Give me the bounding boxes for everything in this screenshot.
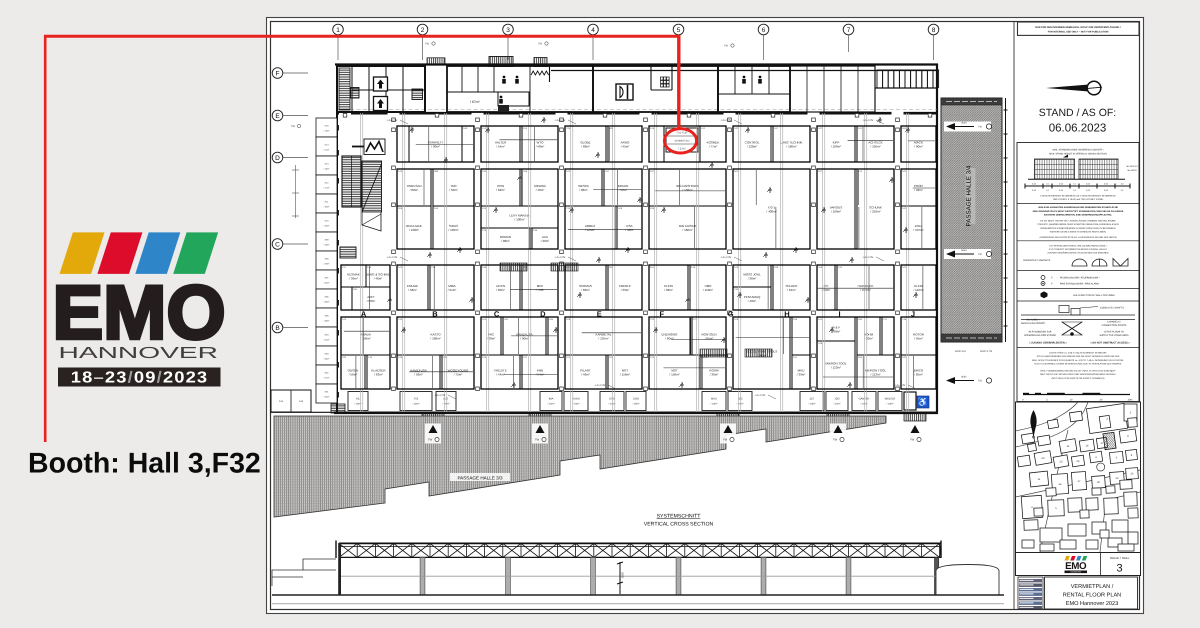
svg-text:5,00: 5,00 — [621, 572, 625, 578]
svg-text:HANNOVER: HANNOVER — [59, 345, 219, 362]
svg-text:/ 22m²: / 22m² — [834, 403, 841, 406]
svg-text:/ 105m²: / 105m² — [870, 145, 880, 149]
svg-text:/ 80m²: / 80m² — [410, 188, 419, 192]
svg-text:STELLA ABZUGEBENDE NACHWEISE W: STELLA ABZUGEBENDE NACHWEISE WIE SIE SIC… — [1037, 355, 1120, 358]
svg-text:I: I — [839, 310, 841, 319]
svg-text:TW: TW — [910, 438, 915, 442]
svg-text:/ 90m²: / 90m² — [520, 337, 529, 341]
svg-text:B: B — [432, 310, 438, 319]
svg-text:A: A — [361, 310, 367, 319]
svg-text:Booth: Hall 3,F32: Booth: Hall 3,F32 — [28, 448, 261, 480]
svg-text:MAX. HOOK TOLERANCE FOR EXHIBI: MAX. HOOK TOLERANCE FOR EXHIBITS ca. 4,2… — [1032, 359, 1124, 362]
svg-text:FIRE EXTINGUISHER / FIRE ALARM: FIRE EXTINGUISHER / FIRE ALARM — [1060, 283, 1099, 286]
svg-text:/ 36m²: / 36m² — [710, 373, 719, 377]
svg-text:HALLE / HALL: HALLE / HALL — [1110, 556, 1130, 560]
svg-text:WEITERE DETAILS SIEHE TECHNISC: WEITERE DETAILS SIEHE TECHNISCHE RICHTLI… — [1050, 230, 1107, 233]
svg-text:/ 30m²: / 30m² — [324, 206, 330, 209]
svg-text:/ 62m²: / 62m² — [496, 188, 505, 192]
svg-text:IMA: IMA — [549, 398, 554, 401]
svg-text:L.Ku 5,7M: L.Ku 5,7M — [435, 394, 446, 397]
svg-text:/ 28m²: / 28m² — [487, 337, 496, 341]
svg-text:/ 36m²: / 36m² — [324, 244, 330, 247]
svg-text:4: 4 — [591, 27, 595, 34]
svg-text:WO KABEL /: WO KABEL / — [1026, 319, 1040, 322]
svg-text:HALLENSTÜTZEN / WALL COLUMNS: HALLENSTÜTZEN / WALL COLUMNS — [1073, 294, 1115, 297]
svg-text:/ 113m²: / 113m² — [831, 366, 841, 370]
svg-text:/ 24m²: / 24m² — [573, 403, 580, 406]
svg-text:E: E — [275, 113, 280, 120]
svg-text:VARIANTEN / VARIANTS: VARIANTEN / VARIANTS — [1023, 259, 1051, 262]
svg-text:/ 156m²: / 156m² — [620, 373, 630, 377]
svg-text:/ 150m²: / 150m² — [360, 337, 370, 341]
svg-text:EMO Hannover 2023: EMO Hannover 2023 — [1066, 601, 1119, 607]
svg-text:L.Ku 5,7M: L.Ku 5,7M — [895, 384, 906, 387]
svg-text:ELT CONCEPT DISTRIBUTION BOXES: ELT CONCEPT DISTRIBUTION BOXES ON WALL W… — [1049, 248, 1107, 251]
svg-text:ZUGANG GEWÄHRLEISTEN / ACCESS: ZUGANG GEWÄHRLEISTEN / ACCESS MUST BE EN… — [1047, 252, 1109, 255]
svg-text:/ 45m²: / 45m² — [324, 301, 330, 304]
svg-text:/ 110m²: / 110m² — [703, 288, 713, 292]
svg-text:/ 63m²: / 63m² — [374, 373, 383, 377]
svg-text:MHU: MHU — [711, 398, 717, 401]
svg-text:VERTICAL CROSS SECTION: VERTICAL CROSS SECTION — [644, 522, 714, 528]
svg-text:/ 36m²: / 36m² — [541, 239, 550, 243]
svg-text:D: D — [540, 310, 546, 319]
svg-text:/ 135m²: / 135m² — [598, 337, 608, 341]
svg-text:3: 3 — [506, 27, 510, 34]
svg-text:/ 60m²: / 60m² — [665, 337, 674, 341]
svg-text:FEUERLÖSCHER / FEUERMELDER /: FEUERLÖSCHER / FEUERMELDER / — [1060, 277, 1100, 280]
svg-text:ES IST NICHT GESTATTET, LAGERF: ES IST NICHT GESTATTET, LAGERFLÄCHEN, KA… — [1040, 220, 1116, 223]
svg-text:/ 92m²: / 92m² — [914, 188, 923, 192]
svg-text:/ 160m²: / 160m² — [786, 145, 796, 149]
svg-text:/ 130m²: / 130m² — [409, 228, 419, 232]
svg-text:L.Ku 5,7M: L.Ku 5,7M — [755, 394, 766, 397]
svg-text:/ 50m²: / 50m² — [367, 299, 376, 303]
svg-text:6: 6 — [762, 27, 766, 34]
svg-text:CONNECTION POINTS: CONNECTION POINTS — [1102, 324, 1127, 327]
svg-text:MAX. FUSSBODENBELASTUNG 5,0 t/: MAX. FUSSBODENBELASTUNG 5,0 t/m² / MAX. … — [1041, 369, 1116, 372]
svg-text:L.Ku 5,7M: L.Ku 5,7M — [555, 119, 566, 122]
svg-text:/ 68m²: / 68m² — [581, 145, 590, 149]
svg-text:A16: A16 — [299, 400, 304, 403]
svg-text:ZET: ZET — [810, 398, 815, 401]
svg-text:L.Ku 5,7M: L.Ku 5,7M — [863, 256, 874, 259]
svg-text:/ 98m²: / 98m² — [664, 288, 673, 292]
svg-text:/ 27m²: / 27m² — [678, 148, 685, 151]
svg-text:STM: STM — [609, 398, 614, 401]
svg-text:« DO NOT OBSTRUCT ACCESS »: « DO NOT OBSTRUCT ACCESS » — [1090, 342, 1130, 345]
svg-text:/ 67m²: / 67m² — [470, 100, 480, 104]
svg-text:/ 169m²: / 169m² — [831, 210, 841, 214]
svg-text:SUPPLY THE STAND AREA: SUPPLY THE STAND AREA — [1099, 334, 1129, 337]
svg-text:KE: KE — [356, 398, 360, 401]
svg-text:/ 95m²: / 95m² — [914, 337, 923, 341]
svg-text:/ 216m²: / 216m² — [870, 210, 880, 214]
svg-text:/ 65m²: / 65m² — [705, 337, 714, 341]
svg-text:/ 24m²: / 24m² — [737, 403, 744, 406]
svg-text:/ 20m²: / 20m² — [633, 403, 640, 406]
svg-text:/ 60m²: / 60m² — [324, 396, 330, 399]
svg-text:LKW 3,6t: LKW 3,6t — [955, 350, 966, 353]
svg-text:/ 113m²: / 113m² — [871, 373, 881, 377]
svg-text:/ 156m²: / 156m² — [669, 373, 679, 377]
svg-text:/ 50m²: / 50m² — [449, 188, 458, 192]
svg-text:L.Ku 5,7M: L.Ku 5,7M — [721, 256, 732, 259]
svg-text:/ 32m²: / 32m² — [413, 403, 420, 406]
svg-text:OBLT. NICHT AUF SICHER HÖHE UN: OBLT. NICHT AUF SICHER HÖHE UND VERSORGU… — [1040, 373, 1117, 376]
svg-text:LKW 3,75t: LKW 3,75t — [980, 350, 992, 353]
svg-text:/ 46m²: / 46m² — [581, 373, 590, 377]
svg-text:2: 2 — [421, 27, 425, 34]
svg-text:/ 58m²: / 58m² — [408, 288, 417, 292]
svg-text:WALTER: WALTER — [885, 398, 896, 401]
svg-text:/ 40m²: / 40m² — [536, 188, 545, 192]
svg-text:/ 86m²: / 86m² — [579, 188, 588, 192]
svg-text:VERSORGUNG DER STÄNDE: VERSORGUNG DER STÄNDE — [1024, 334, 1057, 337]
svg-text:/ 90m²: / 90m² — [431, 145, 440, 149]
svg-text:L.Ku 5,7M: L.Ku 5,7M — [387, 256, 398, 259]
svg-text:NUR FÜR DEN INTERNEN GEBRAUCH,: NUR FÜR DEN INTERNEN GEBRAUCH, NICHT ZUR… — [1035, 25, 1121, 29]
svg-text:/ 85m²: / 85m² — [914, 373, 923, 377]
svg-text:D: D — [275, 155, 280, 162]
svg-text:PASSAGE HALLE 3/3: PASSAGE HALLE 3/3 — [457, 476, 503, 481]
svg-text:TW: TW — [538, 43, 543, 46]
svg-text:L.Ku 5,7M: L.Ku 5,7M — [863, 119, 874, 122]
svg-text:IM FUSSBODEN ZUR: IM FUSSBODEN ZUR — [1029, 331, 1052, 334]
svg-text:« ZUGANG GEWÄHRLEISTEN »: « ZUGANG GEWÄHRLEISTEN » — [1029, 341, 1067, 345]
svg-text:18–23/09/2023: 18–23/09/2023 — [71, 369, 208, 386]
svg-text:/ 51m²: / 51m² — [324, 339, 330, 342]
svg-text:/ 24m²: / 24m² — [711, 403, 718, 406]
svg-text:/ 22m²: / 22m² — [548, 403, 555, 406]
svg-text:/ 27m²: / 27m² — [324, 187, 330, 190]
svg-text:/ 58m²: / 58m² — [414, 373, 423, 377]
svg-text:/ 120m²: / 120m² — [747, 145, 757, 149]
svg-text:VERMIETPLAN /: VERMIETPLAN / — [1071, 583, 1114, 590]
svg-text:G: G — [728, 310, 734, 319]
svg-text:PODESTE, ABHÄNGUNGEN ODER SONS: PODESTE, ABHÄNGUNGEN ODER SONSTIGE EINBA… — [1037, 223, 1118, 226]
svg-text:B3/4: B3/4 — [962, 122, 968, 125]
svg-text:/ 52m²: / 52m² — [619, 188, 628, 192]
svg-text:EMO: EMO — [52, 271, 225, 356]
svg-text:/ 66m²: / 66m² — [581, 288, 590, 292]
svg-text:BAUHÖHE ÜBERSCHREITEN, SIND GE: BAUHÖHE ÜBERSCHREITEN, SIND GENEHMIGUNGS… — [1044, 213, 1112, 216]
svg-text:/ 109m²: / 109m² — [831, 145, 841, 149]
svg-text:/ 54m²: / 54m² — [324, 358, 330, 361]
svg-text:GENEHMIGTEN STANDGRENZEN ZU ER: GENEHMIGTEN STANDGRENZEN ZU ERRICHTEN OD… — [1040, 227, 1116, 230]
svg-text:L.Ku 5,7M: L.Ku 5,7M — [555, 256, 566, 259]
svg-text:CHANNELS /: CHANNELS / — [1107, 321, 1121, 324]
svg-text:EXM: EXM — [633, 398, 639, 401]
svg-text:/ 199m²: / 199m² — [448, 228, 458, 232]
svg-text:/ 44m²: / 44m² — [496, 373, 505, 377]
svg-text:SCHMIDT&co: SCHMIDT&co — [674, 140, 690, 143]
svg-text:F02: F02 — [414, 398, 419, 401]
svg-text:/ 18m²: / 18m² — [324, 130, 330, 133]
svg-text:STAND / AS OF:: STAND / AS OF: — [1039, 107, 1116, 119]
svg-text:RUKO: RUKO — [572, 398, 580, 401]
svg-text:/ 75m²: / 75m² — [454, 373, 463, 377]
svg-text:/ 20m²: / 20m² — [864, 337, 873, 341]
svg-text:J: J — [911, 310, 915, 319]
svg-text:C: C — [494, 310, 500, 319]
svg-text:H: H — [784, 310, 789, 319]
svg-text:ELT-VERTEILUNG IN MAX. WALLDOW: ELT-VERTEILUNG IN MAX. WALLDOWN ANSCHLÜS… — [1049, 244, 1106, 247]
svg-text:5m HOCH /: 5m HOCH / — [1126, 165, 1138, 168]
svg-text:TW: TW — [724, 45, 729, 48]
svg-text:F: F — [276, 70, 280, 77]
svg-text:/ 158m²: / 158m² — [682, 188, 692, 192]
svg-text:/ 30m²: / 30m² — [822, 288, 831, 292]
svg-text:1-GESCHOSSIGKEIT IM UMKREIS un: 1-GESCHOSSIGKEIT IM UMKREIS und 1-GESCHO… — [1040, 195, 1117, 198]
svg-text:MAX. STAND HEIGHT IN VERTICAL: MAX. STAND HEIGHT IN VERTICAL CROSS SECT… — [1049, 152, 1107, 155]
svg-text:/ 48m²: / 48m² — [536, 145, 545, 149]
svg-text:LICHTE HÖHE ca. 4,50 m / Bq AS: LICHTE HÖHE ca. 4,50 m / Bq AS AUSREICH … — [1049, 351, 1107, 354]
svg-text:8: 8 — [932, 27, 936, 34]
svg-text:/ 39m²: / 39m² — [621, 288, 630, 292]
svg-text:/ 24m²: / 24m² — [324, 168, 330, 171]
svg-text:/ 160m²: / 160m² — [682, 228, 692, 232]
svg-text:JSO: JSO — [834, 398, 839, 401]
svg-text:/ 125m²: / 125m² — [585, 228, 595, 232]
svg-text:ONE-STOREY 3.75 M2 und TWO-STO: ONE-STOREY 3.75 M2 und TWO-STOREY STAND — [1053, 198, 1104, 201]
svg-text:30m: 30m — [1128, 398, 1133, 401]
svg-text:ALTO A CLEARANCE LOWER IN GERÜ: ALTO A CLEARANCE LOWER IN GERÜSTLAGE DUE… — [1034, 363, 1122, 366]
svg-text:RENTAL FLOOR PLAN: RENTAL FLOOR PLAN — [1063, 593, 1121, 599]
svg-text:F32 FLIR: F32 FLIR — [677, 132, 688, 135]
svg-text:/ 24m²: / 24m² — [887, 403, 894, 406]
svg-text:/ 75m²: / 75m² — [536, 288, 545, 292]
svg-text:/ 38m²: / 38m² — [625, 228, 634, 232]
svg-text:/ 90m²: / 90m² — [914, 145, 923, 149]
svg-text:TW: TW — [833, 438, 838, 442]
svg-text:B3/4: B3/4 — [962, 249, 968, 252]
svg-text:B: B — [275, 325, 279, 332]
svg-text:PASSAGE HALLE 3/4: PASSAGE HALLE 3/4 — [966, 165, 973, 226]
svg-text:/ 33m²: / 33m² — [324, 225, 330, 228]
svg-text:AUSWEISUNG DER SITZPLÄTZE ALL: AUSWEISUNG DER SITZPLÄTZE ALL LAUFENDEN … — [1040, 236, 1117, 239]
svg-text:/ 39m²: / 39m² — [797, 373, 806, 377]
svg-text:TW: TW — [535, 438, 540, 442]
svg-text:SIND GRUNDSÄTZLICH NICHT GESTA: SIND GRUNDSÄTZLICH NICHT GESTATTET. STAN… — [1033, 210, 1124, 213]
svg-text:MAX. STANDBAUHÖHE IM BEREICH S: MAX. STANDBAUHÖHE IM BEREICH SCHNITT / — [1052, 149, 1103, 152]
svg-text:7: 7 — [847, 27, 851, 34]
svg-text:L.Ku 5,7M: L.Ku 5,7M — [721, 119, 732, 122]
svg-text:3: 3 — [1116, 563, 1122, 575]
svg-text:TW: TW — [428, 438, 433, 442]
svg-text:/ 42m²: / 42m² — [324, 282, 330, 285]
svg-text:FOR INTERNAL USE ONLY – NOT FO: FOR INTERNAL USE ONLY – NOT FOR PUBLICAT… — [1048, 30, 1109, 33]
svg-text:/ 39m²: / 39m² — [324, 263, 330, 266]
svg-text:GANTER: GANTER — [859, 398, 870, 401]
svg-text:TW: TW — [425, 43, 430, 46]
svg-text:/ 45m²: / 45m² — [621, 145, 630, 149]
svg-text:06.06.2023: 06.06.2023 — [1049, 123, 1107, 135]
svg-text:♿: ♿ — [917, 396, 928, 407]
svg-text:/ 46m²: / 46m² — [374, 277, 383, 281]
svg-text:/ 54m²: / 54m² — [496, 145, 505, 149]
svg-text:1: 1 — [336, 27, 340, 34]
svg-text:ANSCHLUSS PRIVATE: ANSCHLUSS PRIVATE — [1021, 322, 1046, 325]
svg-text:L.Ku 5,7M: L.Ku 5,7M — [387, 119, 398, 122]
svg-text:/ 60m²: / 60m² — [496, 288, 505, 292]
svg-text:B3/4: B3/4 — [962, 376, 968, 379]
svg-text:/ 39m²: / 39m² — [349, 277, 358, 281]
svg-text:/ 88m²: / 88m² — [501, 239, 510, 243]
svg-text:/ 168m²: / 168m² — [430, 337, 440, 341]
svg-text:/ 36m²: / 36m² — [748, 277, 757, 281]
svg-text:/ 112m²: / 112m² — [914, 288, 924, 292]
svg-text:TW: TW — [291, 125, 296, 128]
svg-text:CONDUITS / SHAFTS: CONDUITS / SHAFTS — [1100, 307, 1124, 310]
svg-text:/ 21m²: / 21m² — [324, 149, 330, 152]
svg-text:/ 40m²: / 40m² — [748, 299, 757, 303]
svg-text:A15: A15 — [279, 400, 284, 403]
svg-text:HANNOVER: HANNOVER — [1070, 571, 1081, 574]
svg-text:(NOT VALID FOR SHAFTS OR SUPPL: (NOT VALID FOR SHAFTS OR SUPPLY CHANNELS… — [1052, 377, 1105, 380]
svg-text:SYSTEMSCHNITT: SYSTEMSCHNITT — [657, 514, 702, 520]
svg-text:/ 64m²: / 64m² — [787, 288, 796, 292]
svg-text:/ 91m²: / 91m² — [448, 288, 457, 292]
svg-text:/ 77m²: / 77m² — [709, 145, 718, 149]
svg-text:5m HIGH: 5m HIGH — [1127, 169, 1137, 172]
svg-text:IN THE FLOOR TO: IN THE FLOOR TO — [1104, 331, 1124, 334]
svg-text:/ 400m²: / 400m² — [766, 210, 776, 214]
svg-text:/ 57m²: / 57m² — [324, 377, 330, 380]
svg-text:/ 20m²: / 20m² — [443, 403, 450, 406]
svg-text:E: E — [597, 310, 602, 319]
svg-text:/ 24m²: / 24m² — [809, 403, 816, 406]
svg-text:C: C — [275, 241, 280, 248]
svg-text:TW: TW — [723, 438, 728, 442]
svg-text:/ 48m²: / 48m² — [324, 320, 330, 323]
svg-text:F: F — [660, 310, 665, 319]
svg-text:/ 100m²: / 100m² — [514, 218, 524, 222]
svg-text:L.Ku 5,7M: L.Ku 5,7M — [595, 384, 606, 387]
svg-text:JEGLICHE AUFBAUTEN AUSSERHALB: JEGLICHE AUFBAUTEN AUSSERHALB DER GENEHM… — [1038, 206, 1118, 209]
svg-text:5: 5 — [677, 27, 681, 34]
